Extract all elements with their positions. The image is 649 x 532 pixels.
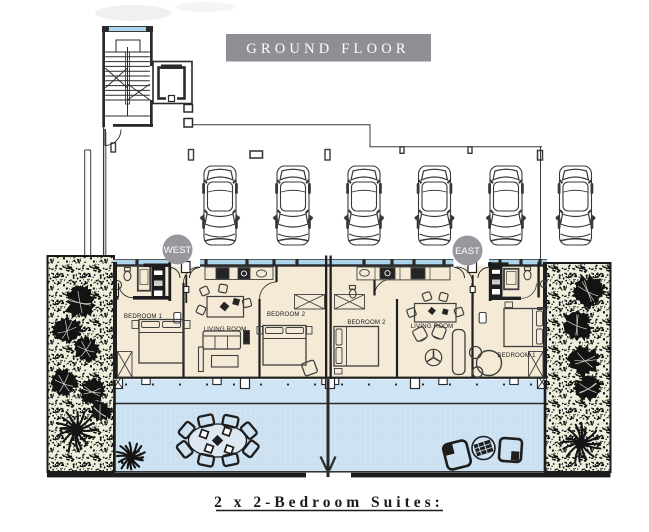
svg-text:BEDROOM 2: BEDROOM 2 <box>267 311 306 318</box>
svg-text:EAST: EAST <box>455 246 480 257</box>
svg-text:BEDROOM 1: BEDROOM 1 <box>124 313 163 320</box>
svg-text:LIVING ROOM: LIVING ROOM <box>411 323 454 330</box>
svg-text:GROUND FLOOR: GROUND FLOOR <box>246 41 410 57</box>
svg-text:WEST: WEST <box>164 245 192 256</box>
svg-text:BEDROOM 2: BEDROOM 2 <box>347 319 386 326</box>
svg-text:BEDROOM 1: BEDROOM 1 <box>497 352 536 359</box>
svg-text:2 x 2-Bedroom Suites:: 2 x 2-Bedroom Suites: <box>214 494 444 511</box>
svg-text:LIVING ROOM: LIVING ROOM <box>204 326 247 333</box>
